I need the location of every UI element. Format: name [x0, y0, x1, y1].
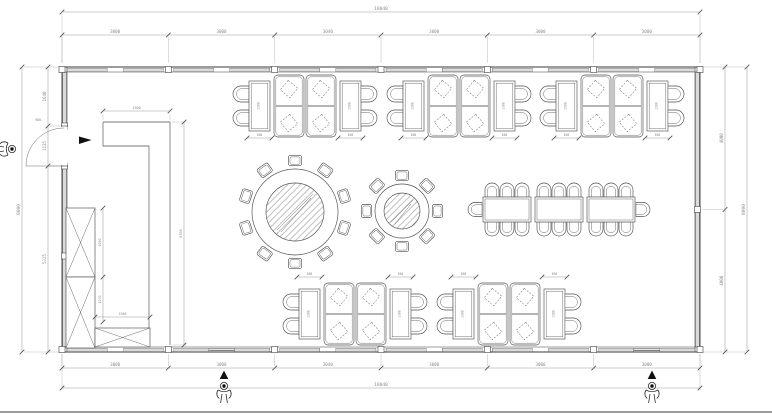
dimension-label: 1300 — [257, 102, 261, 110]
dimension-label: 3000 — [110, 362, 121, 367]
dimension-label: 3000 — [642, 362, 653, 367]
banquet-chair — [239, 188, 253, 204]
banquet-chair — [289, 258, 302, 268]
dimension-label: 8000 — [741, 204, 747, 215]
wall-hatch — [63, 72, 66, 125]
banquet-chair — [432, 205, 442, 218]
arch-chair — [537, 222, 551, 236]
dimension-label: 6300 — [179, 229, 183, 238]
banquet-chair — [396, 170, 409, 180]
arch-chair — [515, 183, 529, 197]
dimension-label: 650 — [502, 133, 508, 137]
wall-hatch — [173, 68, 213, 72]
wall-hatch — [655, 68, 695, 72]
dimension-label: 900 — [35, 118, 41, 122]
banquet-table — [468, 183, 650, 236]
booth-sofa — [356, 283, 386, 345]
cabinet-x-box — [95, 328, 150, 347]
side-table: 1300 — [647, 81, 668, 131]
arch-chair — [437, 294, 453, 310]
arch-chair — [567, 183, 581, 197]
arch-chair — [619, 183, 633, 197]
cabinet-x-box — [66, 277, 95, 348]
entry-door: 900 — [26, 118, 92, 166]
wall-hatch — [599, 68, 639, 72]
wall-hatch — [336, 68, 376, 72]
booth-sofa — [306, 75, 336, 137]
column-marker — [378, 347, 384, 353]
booth-sofa — [274, 75, 304, 137]
arch-chair — [565, 294, 581, 310]
arch-chair — [552, 222, 566, 236]
booth-sofa — [460, 75, 490, 137]
banquet-table-top — [587, 197, 635, 222]
booth-group: 13001300650650 — [283, 272, 427, 345]
entry-arrow — [79, 137, 92, 145]
booth-sofa — [613, 75, 643, 137]
side-table: 1300 — [340, 81, 361, 131]
column-marker — [695, 207, 701, 213]
wall-hatch — [442, 68, 482, 72]
booth-sofa — [478, 283, 508, 345]
column-marker — [484, 67, 490, 73]
arch-chair — [604, 183, 618, 197]
banquet-chair — [317, 162, 334, 178]
dimension-label: 3000 — [110, 29, 121, 34]
arch-chair — [636, 203, 650, 217]
dimension-label: 1300 — [348, 102, 352, 110]
wall-hatch — [492, 348, 532, 352]
dimension-label: 3040 — [323, 29, 334, 34]
column-marker — [59, 347, 65, 353]
dimension-label: 650 — [398, 272, 404, 276]
dimension-label: 650 — [461, 272, 467, 276]
wall-hatch — [549, 348, 589, 352]
wall-hatch — [280, 348, 320, 352]
dimension-label: 1950 — [98, 239, 102, 247]
side-table: 1300 — [390, 289, 411, 339]
dimension-label: 650 — [257, 133, 263, 137]
booth-group: 13001300650650 — [540, 75, 684, 140]
wall-hatch — [67, 68, 107, 72]
arch-chair — [537, 183, 551, 197]
column-marker — [697, 347, 703, 353]
person-figure — [217, 382, 231, 403]
arch-chair — [437, 318, 453, 334]
dimension-label: 1300 — [502, 102, 506, 110]
booth-group: 13001300650650 — [233, 75, 377, 140]
dimension-label: 1135 — [42, 140, 47, 151]
counter-outline — [103, 122, 149, 328]
wall-hatch — [442, 348, 482, 352]
side-table: 1300 — [299, 289, 320, 339]
wall-hatch — [336, 348, 376, 352]
side-table: 1300 — [453, 289, 474, 339]
arch-chair — [411, 294, 427, 310]
dimension-label: 650 — [348, 133, 354, 137]
banquet-chair — [396, 241, 409, 251]
wall-hatch — [235, 348, 270, 352]
entry-arrow — [220, 371, 229, 380]
wall-hatch — [280, 68, 320, 72]
banquet-chair — [337, 220, 351, 236]
dimension-label: 1900 — [132, 106, 141, 110]
side-table: 1300 — [544, 289, 565, 339]
arch-chair — [387, 86, 403, 102]
round-table — [239, 155, 351, 268]
arch-chair — [540, 110, 556, 126]
banquet-chair — [337, 188, 351, 204]
arch-chair — [283, 318, 299, 334]
dimension-label: 3000 — [535, 29, 546, 34]
dimension-label: 650 — [411, 133, 417, 137]
dimension-label: 650 — [564, 133, 570, 137]
wall-hatch — [123, 68, 163, 72]
dimension-label: 3000 — [429, 362, 440, 367]
arch-chair — [589, 183, 603, 197]
arch-chair — [468, 203, 482, 217]
arch-chair — [500, 222, 514, 236]
dimension-label: 18040 — [374, 382, 388, 388]
wall-hatch — [173, 348, 208, 352]
wall-hatch — [67, 348, 107, 352]
column-marker — [697, 67, 703, 73]
dimension-label: 3000 — [216, 29, 227, 34]
dimension-label: 1300 — [307, 310, 311, 318]
wall-hatch — [549, 68, 589, 72]
arch-chair — [565, 318, 581, 334]
wall-hatch — [230, 68, 270, 72]
banquet-chair — [289, 155, 302, 165]
arch-chair — [361, 86, 377, 102]
booth-group: 13001300650650 — [437, 272, 581, 345]
booth-group: 13001300650650 — [387, 75, 531, 140]
dimension-label: 650 — [552, 272, 558, 276]
floor-plan-canvas: 1804030003000304030003000300030003000304… — [0, 0, 772, 414]
round-table — [361, 170, 442, 251]
round-tables — [239, 155, 443, 268]
side-table: 1300 — [556, 81, 577, 131]
person-figure — [0, 142, 16, 156]
arch-chair — [604, 222, 618, 236]
arch-chair — [387, 110, 403, 126]
banquet-table-top — [483, 197, 531, 222]
dimension-label: 3000 — [535, 362, 546, 367]
column-marker — [165, 347, 171, 353]
booth-sofa — [324, 283, 354, 345]
dimension-label: 1300 — [564, 102, 568, 110]
dimension-label: 1300 — [411, 102, 415, 110]
column-marker — [378, 67, 384, 73]
cabinet-x-box — [66, 208, 95, 277]
person-figure — [645, 382, 659, 403]
wall-hatch — [386, 68, 426, 72]
side-table: 1300 — [403, 81, 424, 131]
arch-chair — [515, 222, 529, 236]
dimension-label: 3000 — [642, 29, 653, 34]
column-marker — [591, 67, 597, 73]
arch-chair — [668, 86, 684, 102]
wall-hatch — [386, 348, 426, 352]
column-marker — [165, 67, 171, 73]
wall-hatch — [696, 72, 699, 207]
side-table: 1300 — [249, 81, 270, 131]
banquet-table-top — [535, 197, 583, 222]
banquet-chair — [256, 162, 273, 178]
arch-chair — [515, 86, 531, 102]
wall-hatch — [696, 211, 699, 347]
dimension-label: 1300 — [655, 102, 659, 110]
dimension-label: 3000 — [216, 362, 227, 367]
arch-chair — [619, 222, 633, 236]
dimension-label: 1300 — [461, 310, 465, 318]
arch-chair — [589, 222, 603, 236]
arch-chair — [361, 110, 377, 126]
dimension-label: 3000 — [429, 29, 440, 34]
dimension-label: 4000 — [719, 275, 724, 286]
arch-chair — [233, 86, 249, 102]
arch-chair — [515, 110, 531, 126]
dimension-label: 650 — [655, 133, 661, 137]
arch-chair — [500, 183, 514, 197]
booth-sofa — [581, 75, 611, 137]
dimension-label: 1560 — [119, 312, 127, 316]
dimension-label: 8000 — [16, 204, 22, 215]
arch-chair — [552, 183, 566, 197]
arch-chair — [485, 222, 499, 236]
booth-sofa — [510, 283, 540, 345]
service-counter: 19006300195012701560 — [66, 106, 186, 348]
floor-plan: 1804030003000304030003000300030003000304… — [0, 0, 772, 414]
arch-chair — [567, 222, 581, 236]
column-marker — [591, 347, 597, 353]
banquet-chair — [361, 205, 371, 218]
dimension-label: 3040 — [323, 362, 334, 367]
column-marker — [484, 347, 490, 353]
arch-chair — [668, 110, 684, 126]
dimension-label: 1640 — [42, 91, 47, 102]
dimension-label: 5225 — [42, 253, 47, 264]
column-marker — [59, 67, 65, 73]
column-marker — [272, 347, 278, 353]
wall-hatch — [660, 348, 695, 352]
arch-chair — [485, 183, 499, 197]
side-table: 1300 — [494, 81, 515, 131]
banquet-chair — [256, 246, 273, 262]
dimension-label: 1300 — [552, 310, 556, 318]
dimension-label: 4000 — [719, 133, 724, 144]
column-marker — [272, 67, 278, 73]
wall-hatch — [492, 68, 532, 72]
arch-chair — [283, 294, 299, 310]
arch-chair — [233, 110, 249, 126]
arch-chair — [540, 86, 556, 102]
dimension-label: 1270 — [98, 296, 102, 304]
dimension-label: 650 — [307, 272, 313, 276]
booth-sofa — [428, 75, 458, 137]
banquet-chair — [239, 220, 253, 236]
arch-chair — [411, 318, 427, 334]
dimension-label: 1300 — [398, 310, 402, 318]
banquet-chair — [317, 246, 334, 262]
wall-hatch — [599, 348, 634, 352]
wall-hatch — [123, 348, 163, 352]
dimension-label: 18040 — [374, 6, 388, 12]
entry-arrow — [648, 371, 657, 380]
